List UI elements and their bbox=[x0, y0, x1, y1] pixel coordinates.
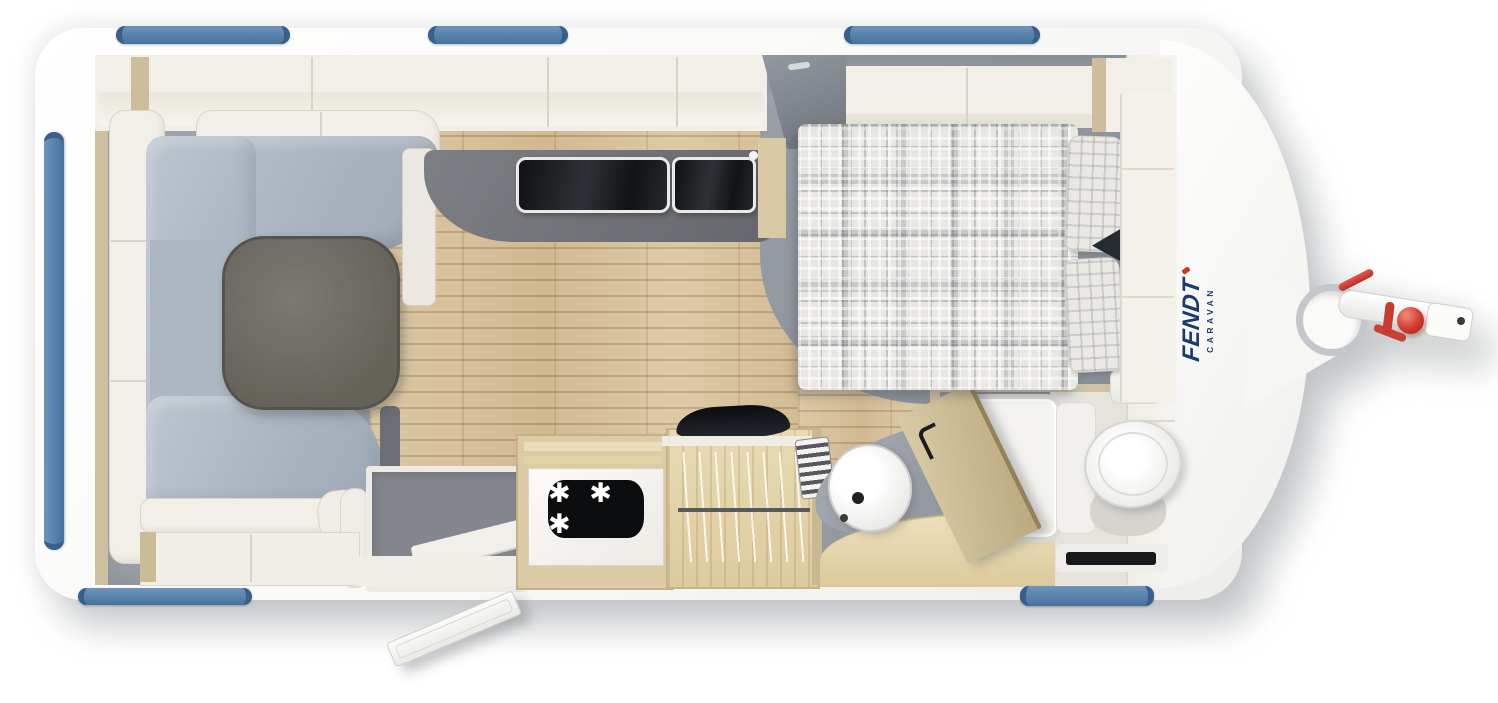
window-top-bed bbox=[844, 26, 1040, 44]
bed-duvet bbox=[798, 124, 1078, 390]
storage-wood-divider bbox=[140, 532, 156, 582]
dinette-table bbox=[222, 236, 400, 410]
shower-door-handle bbox=[916, 422, 948, 460]
door-threshold bbox=[356, 556, 520, 586]
rear-wall-trim bbox=[95, 55, 108, 585]
basin-faucet bbox=[840, 514, 848, 522]
headboard-seam bbox=[1122, 168, 1174, 170]
clothes-hangers bbox=[678, 452, 808, 562]
floor-vent-slot bbox=[1066, 552, 1156, 565]
brand-logo-secondary: CARAVAN bbox=[1206, 260, 1215, 380]
brand-logo-primary: FENDT bbox=[1180, 258, 1204, 381]
headboard-seam bbox=[1122, 296, 1174, 298]
window-bottom-lounge bbox=[78, 588, 252, 605]
storage-seam bbox=[250, 534, 252, 582]
jockey-wheel-crank bbox=[1337, 268, 1374, 292]
window-top-rear bbox=[116, 26, 290, 44]
hitch-coupling bbox=[1424, 302, 1475, 343]
refrigerator-vent-slat bbox=[524, 456, 662, 464]
hitch-handle-ball bbox=[1397, 307, 1424, 334]
window-rear bbox=[44, 132, 64, 550]
wardrobe-rail bbox=[678, 508, 810, 512]
bed-locker-divider bbox=[966, 68, 968, 126]
freezer-rating-icon: ✱ ✱ ✱ bbox=[548, 480, 644, 538]
worktop-knob bbox=[749, 151, 758, 160]
refrigerator-vent-slat bbox=[524, 442, 662, 451]
caravan-floor-plan: ✱ ✱ ✱ FENDT CARAVAN bbox=[0, 0, 1498, 703]
bed-headboard-wall bbox=[1120, 94, 1176, 402]
basin-drain bbox=[852, 492, 864, 504]
brand-logo: FENDT CARAVAN bbox=[1180, 260, 1224, 380]
floor-vent-frame bbox=[1056, 544, 1168, 572]
window-top-kitchen bbox=[428, 26, 568, 44]
locker-divider bbox=[676, 57, 678, 127]
locker-divider bbox=[547, 57, 549, 127]
hitch-coupling-bolt bbox=[1457, 317, 1465, 325]
sink-glass-lid bbox=[516, 157, 670, 213]
kitchen-side-panel bbox=[758, 138, 786, 238]
pillow-bottom bbox=[1063, 257, 1125, 374]
hob-glass-lid bbox=[672, 157, 756, 213]
toilet-seat-ring bbox=[1098, 432, 1168, 496]
window-bottom-front bbox=[1020, 586, 1154, 606]
